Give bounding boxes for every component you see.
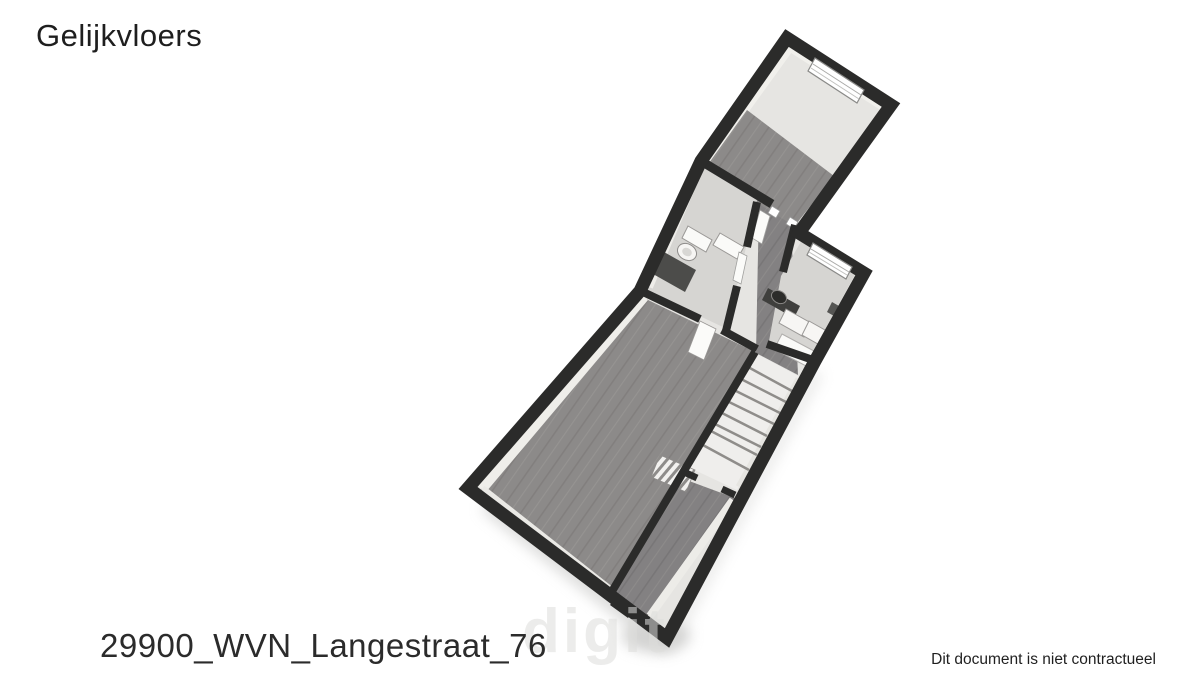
page-title: Gelijkvloers <box>36 18 202 54</box>
document-filename: 29900_WVN_Langestraat_76 <box>100 627 547 665</box>
disclaimer-text: Dit document is niet contractueel <box>931 651 1156 669</box>
screenshot-root: digit Gelijkvloers 29900_WVN_Langestraat… <box>0 0 1200 687</box>
floor-plan <box>0 0 1200 687</box>
